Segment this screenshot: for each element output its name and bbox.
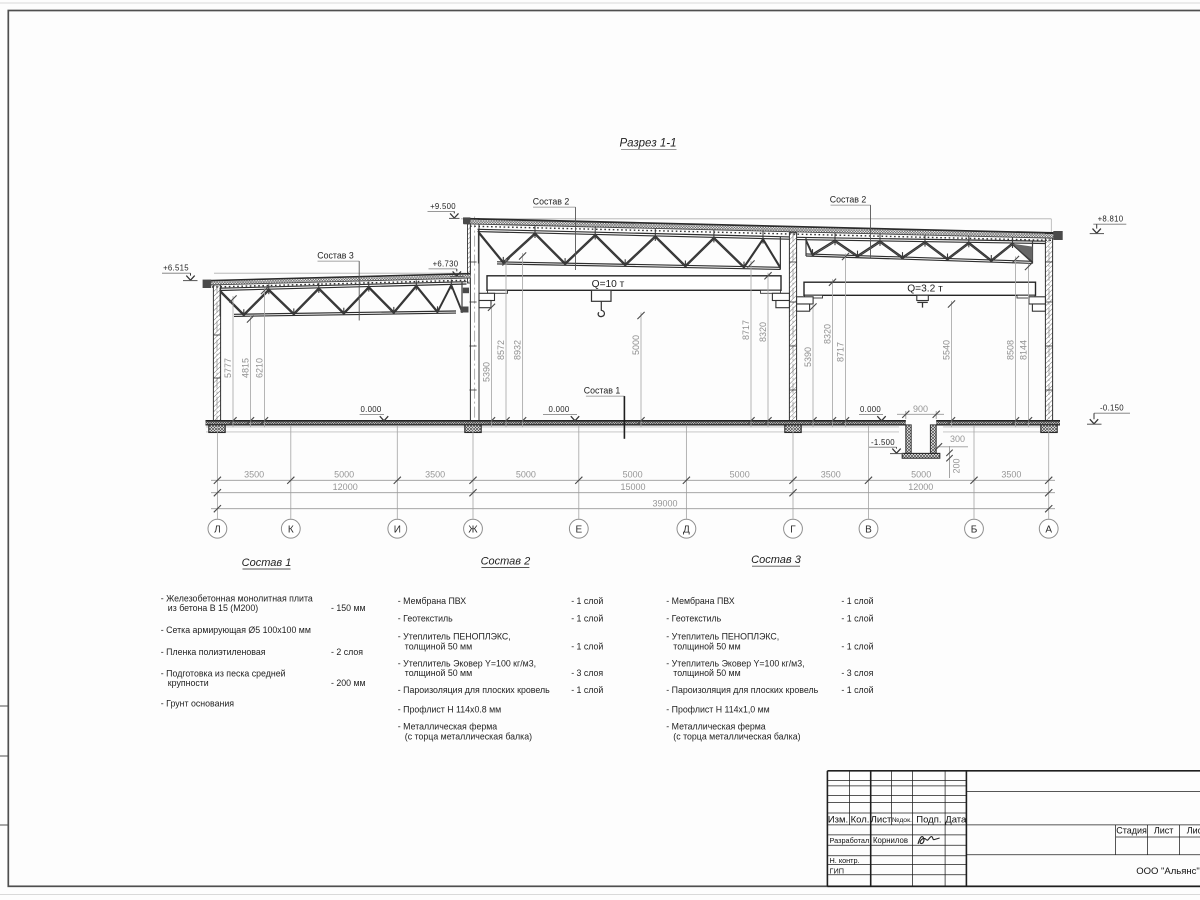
svg-text:- Пароизоляция для плоских кро: - Пароизоляция для плоских кровель: [666, 685, 818, 695]
svg-text:12000: 12000: [908, 482, 933, 492]
svg-text:Лист: Лист: [1187, 826, 1200, 836]
svg-text:Лист: Лист: [871, 814, 892, 825]
svg-text:Состав 2: Состав 2: [830, 194, 867, 204]
svg-text:- Геотекстиль: - Геотекстиль: [398, 613, 453, 623]
svg-text:Ж: Ж: [468, 524, 478, 535]
svg-text:- Мембрана ПВХ: - Мембрана ПВХ: [666, 596, 734, 606]
svg-text:- 1 слой: - 1 слой: [571, 685, 603, 695]
svg-text:3500: 3500: [1001, 470, 1021, 480]
svg-text:8572: 8572: [496, 340, 506, 360]
svg-text:+8.810: +8.810: [1098, 215, 1124, 224]
svg-text:5390: 5390: [481, 362, 491, 382]
svg-text:5540: 5540: [941, 340, 951, 360]
svg-text:ООО "Альянс": ООО "Альянс": [1136, 866, 1200, 877]
svg-text:- Пароизоляция для плоских кро: - Пароизоляция для плоских кровель: [398, 685, 550, 695]
svg-text:5777: 5777: [223, 358, 233, 378]
svg-text:300: 300: [950, 434, 965, 444]
svg-text:-0.150: -0.150: [1100, 404, 1124, 413]
svg-text:- 200 мм: - 200 мм: [331, 678, 366, 688]
svg-text:3500: 3500: [821, 470, 841, 480]
svg-text:- 1 слой: - 1 слой: [841, 685, 873, 695]
svg-text:Состав 1: Состав 1: [584, 385, 621, 395]
svg-text:15000: 15000: [620, 482, 645, 492]
svg-text:5390: 5390: [803, 347, 813, 367]
svg-text:+6.515: +6.515: [163, 264, 189, 273]
svg-text:- Сетка армирующая Ø5 100x100: - Сетка армирующая Ø5 100x100 мм: [161, 625, 311, 635]
svg-text:толщиной 50 мм: толщиной 50 мм: [673, 641, 740, 651]
svg-text:8320: 8320: [822, 324, 832, 344]
svg-text:толщиной 50 мм: толщиной 50 мм: [405, 641, 472, 651]
svg-text:Подп.: Подп.: [916, 814, 941, 825]
svg-text:4815: 4815: [240, 358, 250, 378]
svg-text:Кол.: Кол.: [851, 814, 870, 825]
svg-text:Стадия: Стадия: [1116, 826, 1147, 836]
svg-text:- Металлическая ферма: - Металлическая ферма: [666, 722, 765, 732]
svg-text:Состав 2: Состав 2: [481, 555, 531, 567]
svg-text:8320: 8320: [758, 322, 768, 342]
svg-text:- Мембрана ПВХ: - Мембрана ПВХ: [398, 596, 466, 606]
svg-text:Б: Б: [971, 524, 978, 535]
svg-text:- Железобетонная монолитная п: - Железобетонная монолитная плита: [161, 594, 313, 604]
svg-text:Состав 3: Состав 3: [751, 554, 802, 566]
svg-text:Изм.: Изм.: [828, 814, 848, 825]
svg-text:8508: 8508: [1005, 340, 1015, 360]
svg-text:5000: 5000: [631, 335, 641, 355]
svg-text:К: К: [288, 524, 294, 535]
svg-text:5000: 5000: [516, 470, 536, 480]
svg-text:- 3 слоя: - 3 слоя: [841, 668, 873, 678]
svg-text:5000: 5000: [334, 470, 354, 480]
svg-text:+9.500: +9.500: [430, 202, 456, 211]
svg-text:5000: 5000: [623, 470, 643, 480]
svg-text:- Геотекстиль: - Геотекстиль: [666, 613, 721, 623]
svg-text:И: И: [394, 524, 401, 535]
svg-text:Лист: Лист: [1154, 826, 1174, 836]
svg-text:А: А: [1045, 524, 1052, 535]
svg-text:6210: 6210: [254, 358, 264, 378]
svg-text:3500: 3500: [425, 470, 445, 480]
svg-text:Корнилов: Корнилов: [873, 836, 908, 845]
svg-text:12000: 12000: [333, 482, 358, 492]
svg-text:-1.500: -1.500: [871, 438, 895, 447]
svg-text:Состав 2: Состав 2: [533, 196, 570, 206]
svg-text:0.000: 0.000: [360, 405, 381, 414]
svg-text:- Утеплитель ПЕНОПЛЭКС,: - Утеплитель ПЕНОПЛЭКС,: [666, 632, 779, 642]
svg-text:Разработал: Разработал: [830, 836, 870, 845]
svg-text:- 1 слой: - 1 слой: [571, 641, 603, 651]
svg-text:0.000: 0.000: [548, 405, 569, 414]
svg-text:из бетона В 15 (М200): из бетона В 15 (М200): [168, 603, 258, 613]
svg-text:Состав 3: Состав 3: [317, 250, 354, 260]
svg-text:- Грунт основания: - Грунт основания: [161, 699, 234, 709]
svg-text:5000: 5000: [730, 470, 750, 480]
svg-text:200: 200: [952, 458, 962, 473]
svg-text:толщиной 50 мм: толщиной 50 мм: [405, 668, 472, 678]
svg-text:Q=10 т: Q=10 т: [592, 279, 625, 290]
svg-text:8144: 8144: [1018, 340, 1028, 360]
svg-text:Д: Д: [683, 524, 690, 535]
svg-text:- 1 слой: - 1 слой: [571, 596, 603, 606]
svg-text:№док.: №док.: [892, 817, 912, 824]
svg-text:(с торца металлическая балка): (с торца металлическая балка): [673, 731, 800, 741]
svg-text:- Утеплитель Эковер Y=100 кг/м: - Утеплитель Эковер Y=100 кг/м3,: [398, 658, 536, 668]
svg-text:крупности: крупности: [168, 678, 209, 688]
svg-text:8717: 8717: [741, 320, 751, 340]
svg-text:В: В: [865, 524, 872, 535]
svg-text:- 1 слой: - 1 слой: [841, 641, 873, 651]
svg-text:толщиной 50 мм: толщиной 50 мм: [673, 668, 740, 678]
svg-text:- 2 слоя: - 2 слоя: [331, 647, 363, 657]
svg-text:Состав 1: Состав 1: [242, 557, 292, 569]
svg-text:Разрез 1-1: Разрез 1-1: [620, 138, 677, 150]
svg-text:Л: Л: [214, 524, 221, 535]
svg-text:- Утеплитель ПЕНОПЛЭКС,: - Утеплитель ПЕНОПЛЭКС,: [398, 632, 511, 642]
svg-text:- 1 слой: - 1 слой: [841, 596, 873, 606]
svg-text:Е: Е: [575, 524, 582, 535]
svg-text:- Металлическая ферма: - Металлическая ферма: [398, 722, 497, 732]
svg-text:8932: 8932: [512, 340, 522, 360]
svg-text:Г: Г: [790, 524, 796, 535]
svg-text:ГИП: ГИП: [830, 866, 844, 875]
svg-text:8717: 8717: [835, 342, 845, 362]
svg-text:Q=3.2 т: Q=3.2 т: [907, 283, 943, 294]
svg-text:- 150 мм: - 150 мм: [331, 603, 366, 613]
svg-text:- Пленка полиэтиленовая: - Пленка полиэтиленовая: [161, 647, 266, 657]
svg-text:- 1 слой: - 1 слой: [841, 613, 873, 623]
svg-text:(с торца металлическая балка): (с торца металлическая балка): [405, 731, 532, 741]
svg-text:39000: 39000: [652, 498, 677, 508]
svg-text:- Профлист Н 114х0.8 мм: - Профлист Н 114х0.8 мм: [398, 704, 501, 714]
svg-text:- 1 слой: - 1 слой: [571, 613, 603, 623]
svg-text:- Подготовка из песка средней: - Подготовка из песка средней: [161, 668, 286, 678]
svg-text:3500: 3500: [244, 470, 264, 480]
svg-text:- 3 слоя: - 3 слоя: [571, 668, 603, 678]
svg-text:- Профлист Н 114х1,0 мм: - Профлист Н 114х1,0 мм: [666, 704, 769, 714]
svg-text:+6.730: +6.730: [433, 259, 459, 268]
svg-text:Дата: Дата: [945, 814, 967, 825]
svg-text:900: 900: [913, 404, 928, 414]
svg-text:- Утеплитель Эковер Y=100 кг/м: - Утеплитель Эковер Y=100 кг/м3,: [666, 658, 804, 668]
svg-text:5000: 5000: [911, 470, 931, 480]
svg-text:Н. контр.: Н. контр.: [830, 856, 860, 865]
svg-text:0.000: 0.000: [860, 405, 881, 414]
